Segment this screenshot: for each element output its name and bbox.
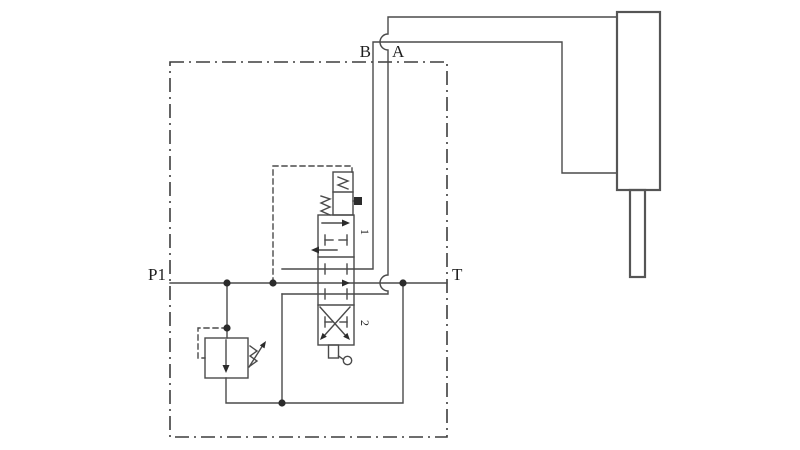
lever-knob — [343, 356, 351, 364]
valve-position-1-label: 1 — [358, 229, 372, 235]
valve-position-2-label: 2 — [358, 320, 372, 326]
junction-dots — [223, 279, 406, 406]
valve-lever — [329, 345, 352, 365]
flow-arrow-right — [342, 280, 350, 287]
port-label-t: T — [452, 265, 463, 284]
relief-flow-arrow — [223, 365, 230, 373]
plug-block — [354, 197, 362, 205]
port-label-b: B — [360, 42, 371, 61]
directional-control-valve — [282, 215, 354, 345]
port-label-a: A — [392, 42, 405, 61]
valve-return-spring — [321, 196, 330, 215]
schematic-canvas: P1 T B A 1 2 — [0, 0, 800, 450]
hydraulic-schematic: P1 T B A 1 2 — [0, 0, 800, 450]
relief-pilot-line — [198, 328, 227, 358]
detent-glyph — [338, 177, 348, 189]
relief-valve — [198, 283, 266, 378]
work-line-b — [354, 42, 617, 269]
hydraulic-cylinder — [617, 12, 660, 277]
port-label-p1: P1 — [148, 265, 166, 284]
system-boundary — [170, 62, 447, 437]
pos1-flow-arrow — [342, 220, 350, 227]
cylinder-barrel — [617, 12, 660, 190]
tank-return-line — [226, 283, 403, 403]
pos1-return-arrow — [311, 247, 319, 254]
cylinder-rod — [630, 190, 645, 277]
